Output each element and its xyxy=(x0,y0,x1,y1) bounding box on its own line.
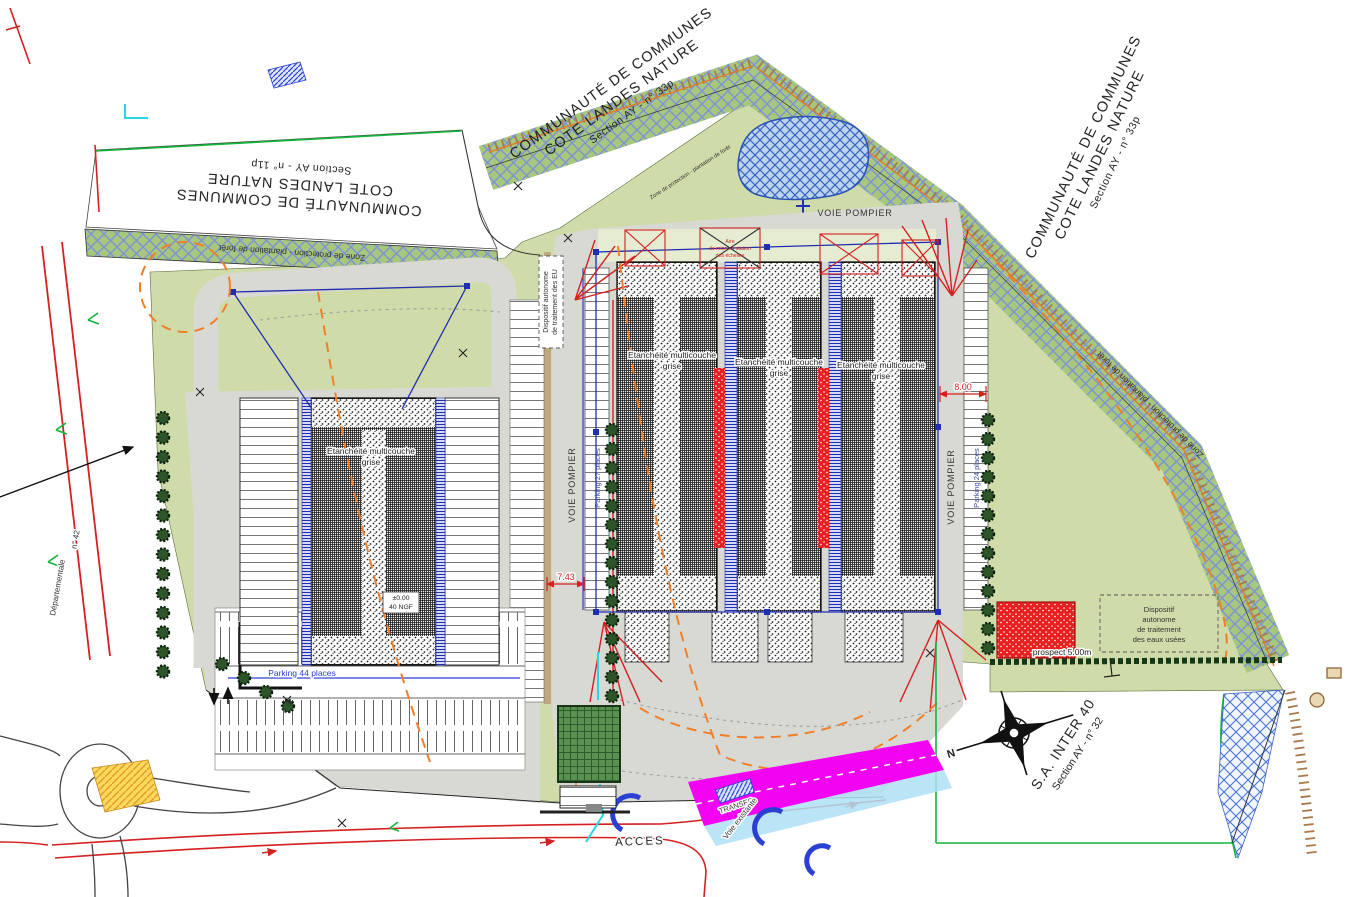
parking-left-label: Parking 27 places xyxy=(593,448,602,508)
building-label: Etanchéité multicouche xyxy=(327,446,415,456)
tree-icon xyxy=(982,471,994,483)
tree-icon xyxy=(606,595,618,607)
tree-icon xyxy=(282,700,294,712)
dispositif-text: des eaux usées xyxy=(1133,635,1186,644)
building-label: Etanchéité multicouche xyxy=(837,360,925,370)
building-label: Etanchéité multicouche xyxy=(735,357,823,367)
tree-icon xyxy=(982,623,994,635)
dispositif-text: Dispositif xyxy=(1144,605,1175,614)
prospect-label: prospect 5.00m xyxy=(1033,647,1092,657)
tree-icon xyxy=(157,510,169,522)
voie-pompier-left-label: VOIE POMPIER xyxy=(567,447,577,522)
tree-icon xyxy=(606,652,618,664)
building-label: grise xyxy=(872,371,891,381)
tree-icon xyxy=(982,585,994,597)
tree-icon xyxy=(606,424,618,436)
tree-icon xyxy=(982,566,994,578)
building-label: grise xyxy=(663,361,682,371)
building-label: grise xyxy=(362,457,381,467)
building-label: grise xyxy=(770,368,789,378)
tree-icon xyxy=(157,588,169,600)
tree-icon xyxy=(606,557,618,569)
tree-icon xyxy=(982,433,994,445)
tree-icon xyxy=(157,471,169,483)
tree-icon xyxy=(982,547,994,559)
aire-text: Aire xyxy=(725,239,734,245)
blue-joint-strip xyxy=(829,262,841,612)
parking-strip-left xyxy=(585,268,609,610)
tree-icon xyxy=(157,412,169,424)
parking-right-label: Parking 24 places xyxy=(972,448,981,508)
voie-pompier-right-label: VOIE POMPIER xyxy=(946,449,956,524)
tree-icon xyxy=(606,576,618,588)
tree-icon xyxy=(157,549,169,561)
dimension-743-label: 7.43 xyxy=(557,572,575,582)
red-strip xyxy=(714,368,725,548)
tree-icon xyxy=(982,452,994,464)
tree-icon xyxy=(606,443,618,455)
stipple-texture xyxy=(618,263,934,610)
red-strip xyxy=(818,368,829,548)
tree-icon xyxy=(982,528,994,540)
tree-icon xyxy=(606,671,618,683)
dispositif-text: de traitement xyxy=(1137,625,1182,634)
tree-icon xyxy=(238,672,250,684)
dispositif-text: autonome xyxy=(1142,615,1175,624)
tree-icon xyxy=(216,658,228,670)
level-label: ±0.00 xyxy=(393,595,410,602)
aire-text: des échelles xyxy=(716,253,745,259)
tree-icon xyxy=(606,481,618,493)
tree-icon xyxy=(606,538,618,550)
tree-icon xyxy=(982,414,994,426)
tree-icon xyxy=(982,509,994,521)
dispositif-text: de traitement des EU xyxy=(552,269,559,335)
tree-icon xyxy=(982,604,994,616)
left-building xyxy=(240,398,499,665)
dispositif-text: Dispositif autonome xyxy=(543,271,550,333)
tree-icon xyxy=(260,686,272,698)
tree-icon xyxy=(157,432,169,444)
level-label: 40 NGF xyxy=(389,604,413,611)
tree-icon xyxy=(157,627,169,639)
voie-pompier-top-label: VOIE POMPIER xyxy=(817,208,892,218)
tree-icon xyxy=(606,690,618,702)
blue-joint-strip xyxy=(725,262,737,612)
acces-label: ACCES xyxy=(615,835,665,849)
tree-icon xyxy=(157,490,169,502)
tree-icon xyxy=(606,519,618,531)
building-label: Etanchéité multicouche xyxy=(628,350,716,360)
tree-icon xyxy=(157,666,169,678)
tree-icon xyxy=(606,462,618,474)
site-plan-drawing: COMMUNAUTÉ DE COMMUNES COTE LANDES NATUR… xyxy=(0,0,1356,897)
tree-icon xyxy=(157,646,169,658)
tree-icon xyxy=(606,614,618,626)
tree-icon xyxy=(982,490,994,502)
dimension-8-label: 8.00 xyxy=(954,382,972,392)
parking-south-label: Parking 44 places xyxy=(268,668,336,678)
tree-icon xyxy=(606,633,618,645)
tree-icon xyxy=(157,451,169,463)
aire-text: de mise en station xyxy=(709,246,751,252)
retention-pond xyxy=(738,116,869,199)
hedge-line xyxy=(990,660,1282,662)
tree-icon xyxy=(606,500,618,512)
tree-icon xyxy=(157,529,169,541)
tree-icon xyxy=(157,568,169,580)
tree-icon xyxy=(982,642,994,654)
site-plan-page: COMMUNAUTÉ DE COMMUNES COTE LANDES NATUR… xyxy=(0,0,1356,897)
tree-icon xyxy=(157,607,169,619)
